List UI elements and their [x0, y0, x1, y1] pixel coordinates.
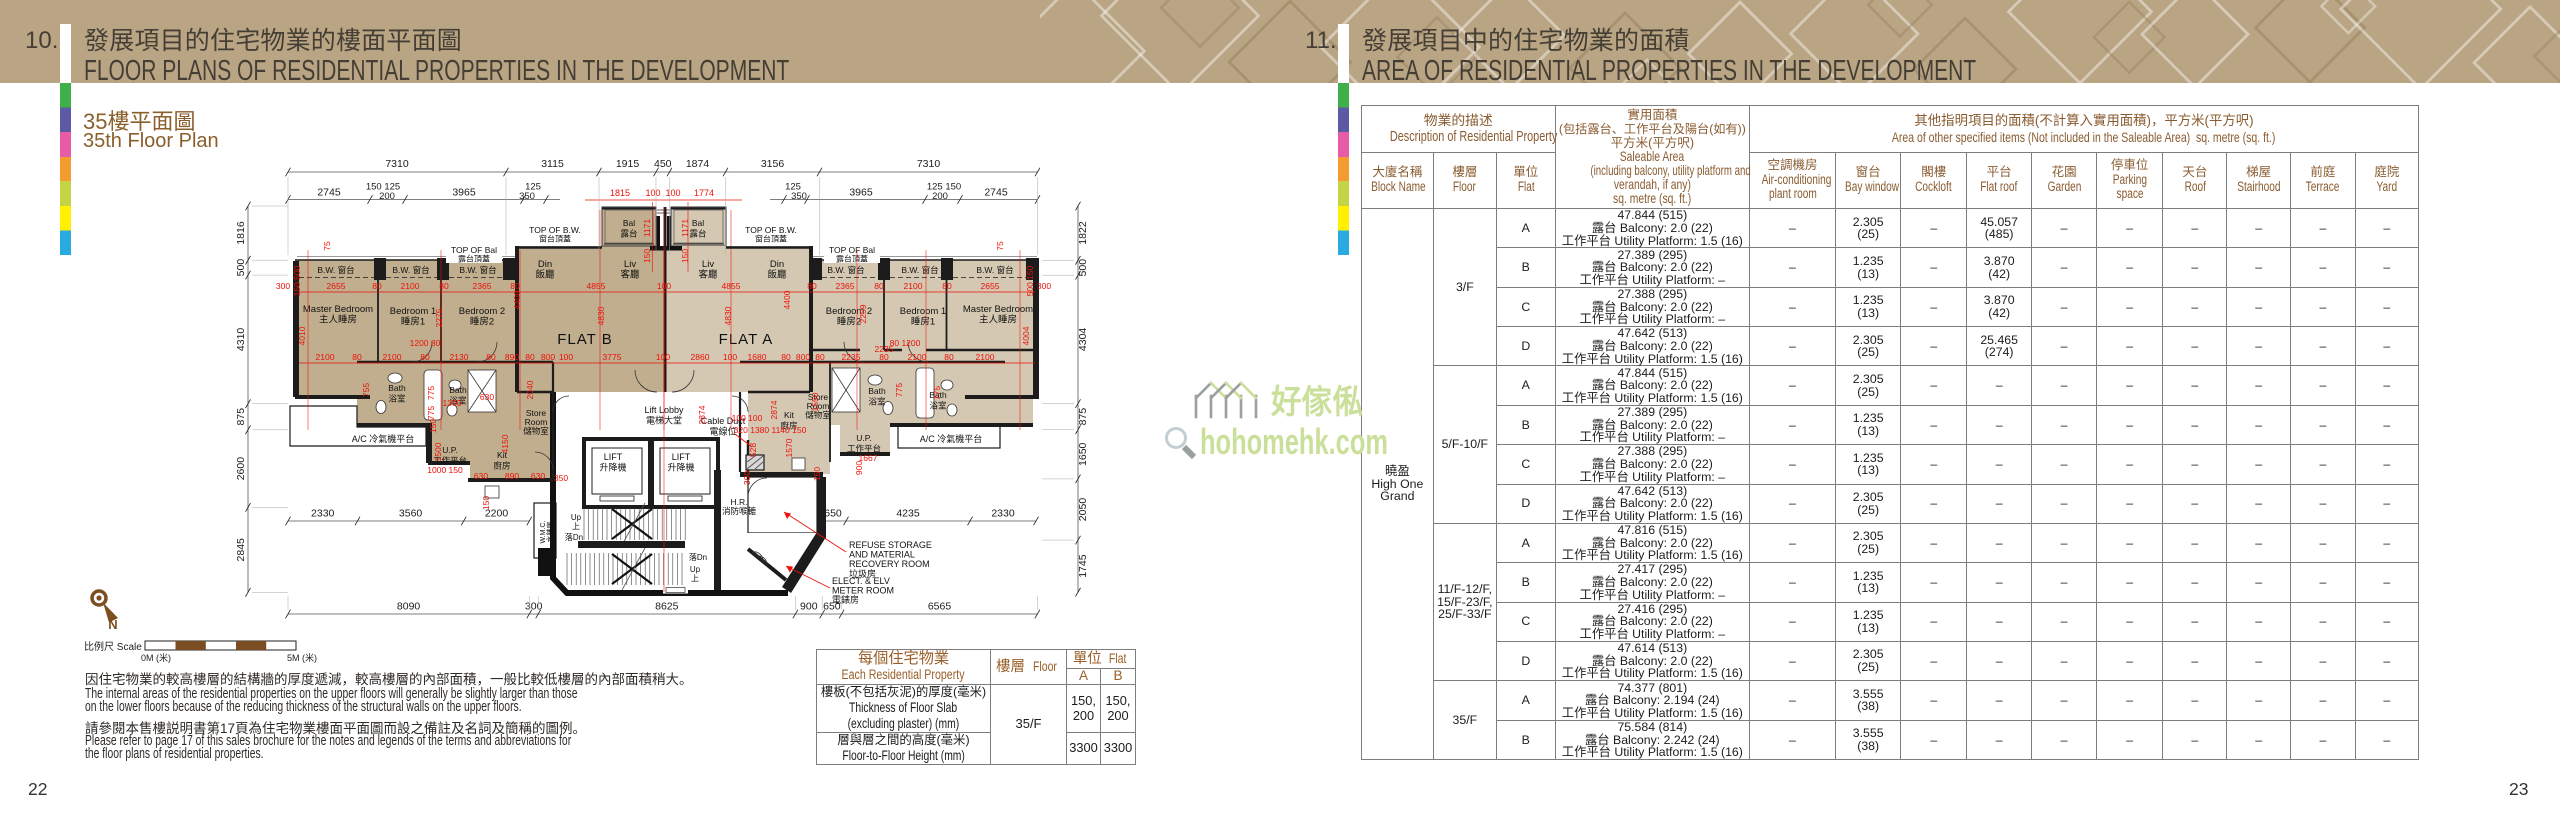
svg-text:1680: 1680 — [748, 352, 767, 362]
svg-text:1650: 1650 — [1077, 442, 1089, 466]
svg-text:2365: 2365 — [836, 281, 855, 291]
svg-text:U.P.: U.P. — [442, 445, 457, 455]
svg-text:100: 100 — [645, 188, 660, 198]
svg-text:3560: 3560 — [399, 508, 423, 520]
svg-text:水錶房: 水錶房 — [545, 522, 554, 543]
svg-text:Bedroom 1: Bedroom 1 — [900, 306, 946, 317]
svg-text:4150: 4150 — [500, 434, 510, 453]
svg-text:80: 80 — [815, 352, 825, 362]
svg-text:B.W. 窗台: B.W. 窗台 — [392, 265, 429, 275]
svg-text:2100: 2100 — [976, 352, 995, 362]
svg-text:2745: 2745 — [984, 187, 1008, 199]
svg-text:LIFT: LIFT — [672, 452, 691, 462]
svg-text:150: 150 — [481, 496, 491, 510]
svg-text:100: 100 — [723, 352, 737, 362]
svg-text:1570: 1570 — [784, 438, 794, 457]
svg-text:U.P.: U.P. — [856, 433, 871, 443]
svg-text:200: 200 — [379, 191, 395, 202]
svg-text:客廳: 客廳 — [698, 269, 718, 281]
svg-text:80: 80 — [807, 281, 817, 291]
svg-text:0M (米): 0M (米) — [141, 652, 171, 663]
svg-text:2745: 2745 — [317, 187, 341, 199]
svg-text:METER ROOM: METER ROOM — [832, 586, 894, 596]
svg-text:升降機: 升降機 — [599, 462, 626, 473]
svg-text:350: 350 — [519, 191, 535, 202]
svg-text:REFUSE STORAGE: REFUSE STORAGE — [849, 540, 932, 550]
svg-text:4855: 4855 — [587, 281, 606, 291]
svg-text:4400: 4400 — [512, 290, 522, 309]
svg-text:消防喉轆: 消防喉轆 — [722, 506, 757, 516]
svg-text:875: 875 — [1077, 408, 1089, 426]
svg-text:150: 150 — [428, 419, 438, 433]
svg-text:睡房1: 睡房1 — [911, 316, 935, 328]
svg-text:落Dn: 落Dn — [565, 532, 583, 542]
svg-text:4855: 4855 — [722, 281, 741, 291]
svg-text:4830: 4830 — [723, 306, 733, 325]
svg-text:80: 80 — [352, 352, 362, 362]
svg-text:1300: 1300 — [443, 398, 462, 408]
svg-text:睡房1: 睡房1 — [401, 316, 425, 328]
svg-text:Liv: Liv — [624, 259, 636, 270]
svg-text:100: 100 — [656, 352, 670, 362]
svg-text:主人睡房: 主人睡房 — [319, 314, 357, 326]
svg-text:3965: 3965 — [452, 187, 476, 199]
svg-text:N: N — [108, 617, 117, 632]
svg-text:2874: 2874 — [769, 400, 779, 419]
svg-text:1745: 1745 — [1077, 554, 1089, 578]
svg-text:150 500: 150 500 — [292, 265, 302, 296]
svg-text:1550: 1550 — [810, 392, 820, 411]
svg-text:TOP OF B.W.: TOP OF B.W. — [529, 225, 581, 235]
svg-text:1171: 1171 — [680, 219, 690, 238]
svg-text:4400: 4400 — [782, 290, 792, 309]
svg-text:75: 75 — [995, 241, 1005, 251]
svg-text:875: 875 — [235, 408, 247, 426]
svg-text:320 1380 1140 150: 320 1380 1140 150 — [734, 425, 807, 435]
svg-text:80: 80 — [525, 352, 535, 362]
svg-text:A/C 冷氣機平台: A/C 冷氣機平台 — [920, 433, 983, 444]
svg-text:3775: 3775 — [603, 352, 622, 362]
svg-text:B.W. 窗台: B.W. 窗台 — [901, 265, 938, 275]
svg-text:FLAT A: FLAT A — [719, 331, 774, 348]
svg-text:落Dn: 落Dn — [689, 552, 707, 562]
svg-text:6565: 6565 — [928, 601, 952, 613]
svg-text:浴室: 浴室 — [388, 394, 406, 404]
svg-text:Master Bedroom: Master Bedroom — [963, 304, 1033, 315]
svg-text:100: 100 — [657, 281, 671, 291]
svg-text:2330: 2330 — [991, 508, 1015, 520]
svg-text:2845: 2845 — [235, 538, 247, 562]
svg-text:4304: 4304 — [1077, 328, 1089, 352]
svg-text:1874: 1874 — [686, 158, 710, 170]
svg-text:B.W. 窗台: B.W. 窗台 — [459, 265, 496, 275]
svg-text:450: 450 — [654, 158, 672, 170]
svg-text:Bath: Bath — [449, 385, 467, 395]
svg-text:775: 775 — [426, 406, 436, 420]
svg-text:窗台頂蓋: 窗台頂蓋 — [755, 234, 787, 244]
svg-text:100: 100 — [559, 352, 573, 362]
svg-text:630: 630 — [480, 392, 494, 402]
svg-text:上: 上 — [572, 522, 580, 531]
svg-text:1171: 1171 — [642, 219, 652, 238]
svg-text:好傢俬: 好傢俬 — [1270, 383, 1363, 420]
svg-text:AND MATERIAL: AND MATERIAL — [849, 550, 915, 560]
svg-text:900: 900 — [800, 601, 818, 613]
svg-text:80: 80 — [420, 352, 430, 362]
svg-text:2100: 2100 — [908, 352, 927, 362]
svg-text:Bath: Bath — [868, 386, 886, 396]
svg-text:比例尺 Scale: 比例尺 Scale — [84, 640, 142, 653]
svg-text:80: 80 — [439, 281, 449, 291]
svg-text:睡房2: 睡房2 — [470, 316, 494, 328]
svg-text:2100: 2100 — [904, 281, 923, 291]
svg-text:890: 890 — [505, 352, 519, 362]
svg-text:80: 80 — [781, 352, 791, 362]
svg-text:ELECT. & ELV: ELECT. & ELV — [832, 576, 890, 586]
svg-text:3156: 3156 — [761, 158, 785, 170]
svg-text:630: 630 — [474, 471, 488, 481]
svg-text:2130: 2130 — [450, 352, 469, 362]
svg-text:80 1200: 80 1200 — [890, 338, 921, 348]
svg-text:2275: 2275 — [434, 308, 444, 327]
svg-text:A/C 冷氣機平台: A/C 冷氣機平台 — [352, 433, 415, 444]
svg-text:200: 200 — [932, 191, 948, 202]
svg-text:2655: 2655 — [981, 281, 1000, 291]
svg-text:775: 775 — [932, 386, 942, 400]
svg-text:8625: 8625 — [655, 601, 679, 613]
svg-text:2100: 2100 — [316, 352, 335, 362]
svg-text:1500: 1500 — [433, 442, 443, 461]
svg-text:露台頂蓋: 露台頂蓋 — [836, 254, 868, 264]
svg-text:TOP OF B.W.: TOP OF B.W. — [745, 225, 797, 235]
svg-text:1915: 1915 — [616, 158, 640, 170]
svg-text:4310: 4310 — [235, 328, 247, 352]
svg-text:1815: 1815 — [610, 188, 630, 198]
svg-text:7310: 7310 — [385, 158, 409, 170]
svg-text:5M (米): 5M (米) — [287, 652, 317, 663]
svg-text:630: 630 — [531, 471, 545, 481]
svg-text:窗台頂蓋: 窗台頂蓋 — [539, 234, 571, 244]
svg-text:1667: 1667 — [859, 453, 878, 463]
svg-text:2330: 2330 — [311, 508, 335, 520]
svg-text:650: 650 — [824, 508, 842, 520]
svg-text:3115: 3115 — [541, 158, 564, 170]
svg-text:1000 150: 1000 150 — [427, 465, 463, 475]
svg-text:儲物室: 儲物室 — [523, 426, 549, 436]
svg-text:Bal: Bal — [692, 218, 704, 228]
svg-text:890: 890 — [505, 471, 519, 481]
svg-text:755: 755 — [361, 383, 371, 397]
svg-text:上: 上 — [691, 574, 699, 583]
svg-text:775: 775 — [894, 383, 904, 397]
svg-text:露台: 露台 — [620, 229, 637, 239]
svg-text:80: 80 — [874, 281, 884, 291]
svg-text:4004: 4004 — [1021, 326, 1031, 345]
svg-text:Liv: Liv — [702, 259, 714, 270]
svg-text:300: 300 — [1037, 281, 1051, 291]
svg-text:1774: 1774 — [694, 188, 714, 198]
svg-text:350: 350 — [791, 191, 807, 202]
svg-text:2100: 2100 — [401, 281, 420, 291]
svg-text:80: 80 — [486, 352, 496, 362]
svg-text:4830: 4830 — [596, 306, 606, 325]
svg-text:500: 500 — [1077, 259, 1089, 277]
svg-text:FLAT B: FLAT B — [557, 331, 612, 348]
svg-text:80: 80 — [372, 281, 382, 291]
svg-text:300: 300 — [742, 471, 752, 485]
svg-text:露台頂蓋: 露台頂蓋 — [458, 254, 490, 264]
svg-text:Master Bedroom: Master Bedroom — [303, 304, 373, 315]
svg-text:80: 80 — [510, 281, 520, 291]
svg-text:TOP OF Bal: TOP OF Bal — [829, 245, 875, 255]
svg-text:hohomehk.com: hohomehk.com — [1200, 421, 1388, 462]
svg-text:B.W. 窗台: B.W. 窗台 — [827, 265, 864, 275]
svg-text:浴室: 浴室 — [868, 397, 886, 407]
svg-text:飯廳: 飯廳 — [535, 269, 555, 281]
svg-text:2235: 2235 — [842, 352, 861, 362]
svg-text:80: 80 — [942, 281, 952, 291]
svg-text:800: 800 — [541, 352, 555, 362]
svg-text:電錶房: 電錶房 — [832, 594, 859, 605]
svg-text:1822: 1822 — [1077, 221, 1089, 245]
svg-text:150: 150 — [642, 249, 652, 263]
svg-text:Bedroom 1: Bedroom 1 — [390, 306, 436, 317]
svg-text:300: 300 — [276, 281, 290, 291]
svg-text:Up: Up — [690, 565, 701, 574]
svg-text:500: 500 — [235, 259, 247, 277]
svg-text:2860: 2860 — [691, 352, 710, 362]
svg-text:廚房: 廚房 — [493, 461, 510, 471]
svg-text:Din: Din — [538, 259, 552, 270]
svg-text:W.M.C.: W.M.C. — [540, 520, 547, 543]
svg-text:Kit: Kit — [784, 410, 795, 420]
svg-text:150: 150 — [812, 467, 822, 481]
svg-text:Bal: Bal — [623, 218, 635, 228]
svg-text:客廳: 客廳 — [620, 269, 640, 281]
svg-text:浴室: 浴室 — [929, 401, 947, 411]
svg-text:2655: 2655 — [327, 281, 346, 291]
svg-text:8090: 8090 — [397, 601, 421, 613]
svg-text:2874: 2874 — [697, 405, 707, 424]
svg-text:工作平台: 工作平台 — [847, 444, 881, 454]
svg-text:4010: 4010 — [297, 326, 307, 345]
svg-text:露台: 露台 — [689, 229, 706, 239]
svg-text:80: 80 — [944, 352, 954, 362]
svg-text:主人睡房: 主人睡房 — [979, 314, 1017, 326]
svg-text:100 100: 100 100 — [732, 413, 763, 423]
svg-text:775: 775 — [426, 386, 436, 400]
svg-text:Bath: Bath — [388, 383, 406, 393]
svg-text:Bedroom 2: Bedroom 2 — [459, 306, 505, 317]
svg-text:B.W. 窗台: B.W. 窗台 — [317, 265, 354, 275]
svg-text:300: 300 — [525, 601, 543, 613]
svg-text:2259: 2259 — [858, 304, 868, 323]
svg-text:100: 100 — [665, 188, 680, 198]
svg-text:75: 75 — [322, 241, 332, 251]
svg-text:4235: 4235 — [896, 508, 920, 520]
svg-text:350: 350 — [554, 473, 568, 483]
svg-text:150: 150 — [680, 249, 690, 263]
svg-text:2365: 2365 — [473, 281, 492, 291]
svg-text:2050: 2050 — [1077, 498, 1089, 522]
svg-text:電線位: 電線位 — [709, 426, 736, 437]
svg-text:RECOVERY ROOM: RECOVERY ROOM — [849, 559, 930, 569]
svg-text:1200 80: 1200 80 — [410, 338, 441, 348]
svg-text:升降機: 升降機 — [667, 462, 694, 473]
svg-text:2600: 2600 — [235, 457, 247, 481]
svg-text:800: 800 — [796, 352, 810, 362]
svg-text:2235: 2235 — [875, 344, 894, 354]
svg-text:飯廳: 飯廳 — [767, 269, 787, 281]
svg-text:B.W. 窗台: B.W. 窗台 — [976, 265, 1013, 275]
svg-text:500 150: 500 150 — [1025, 265, 1035, 296]
svg-text:2100: 2100 — [383, 352, 402, 362]
svg-text:TOP OF Bal: TOP OF Bal — [451, 245, 497, 255]
svg-text:Up: Up — [571, 513, 582, 522]
svg-text:3965: 3965 — [849, 187, 873, 199]
svg-text:LIFT: LIFT — [604, 452, 623, 462]
svg-text:7310: 7310 — [917, 158, 941, 170]
svg-text:Din: Din — [770, 259, 784, 270]
svg-text:2040: 2040 — [525, 380, 535, 399]
svg-text:1816: 1816 — [235, 221, 247, 245]
